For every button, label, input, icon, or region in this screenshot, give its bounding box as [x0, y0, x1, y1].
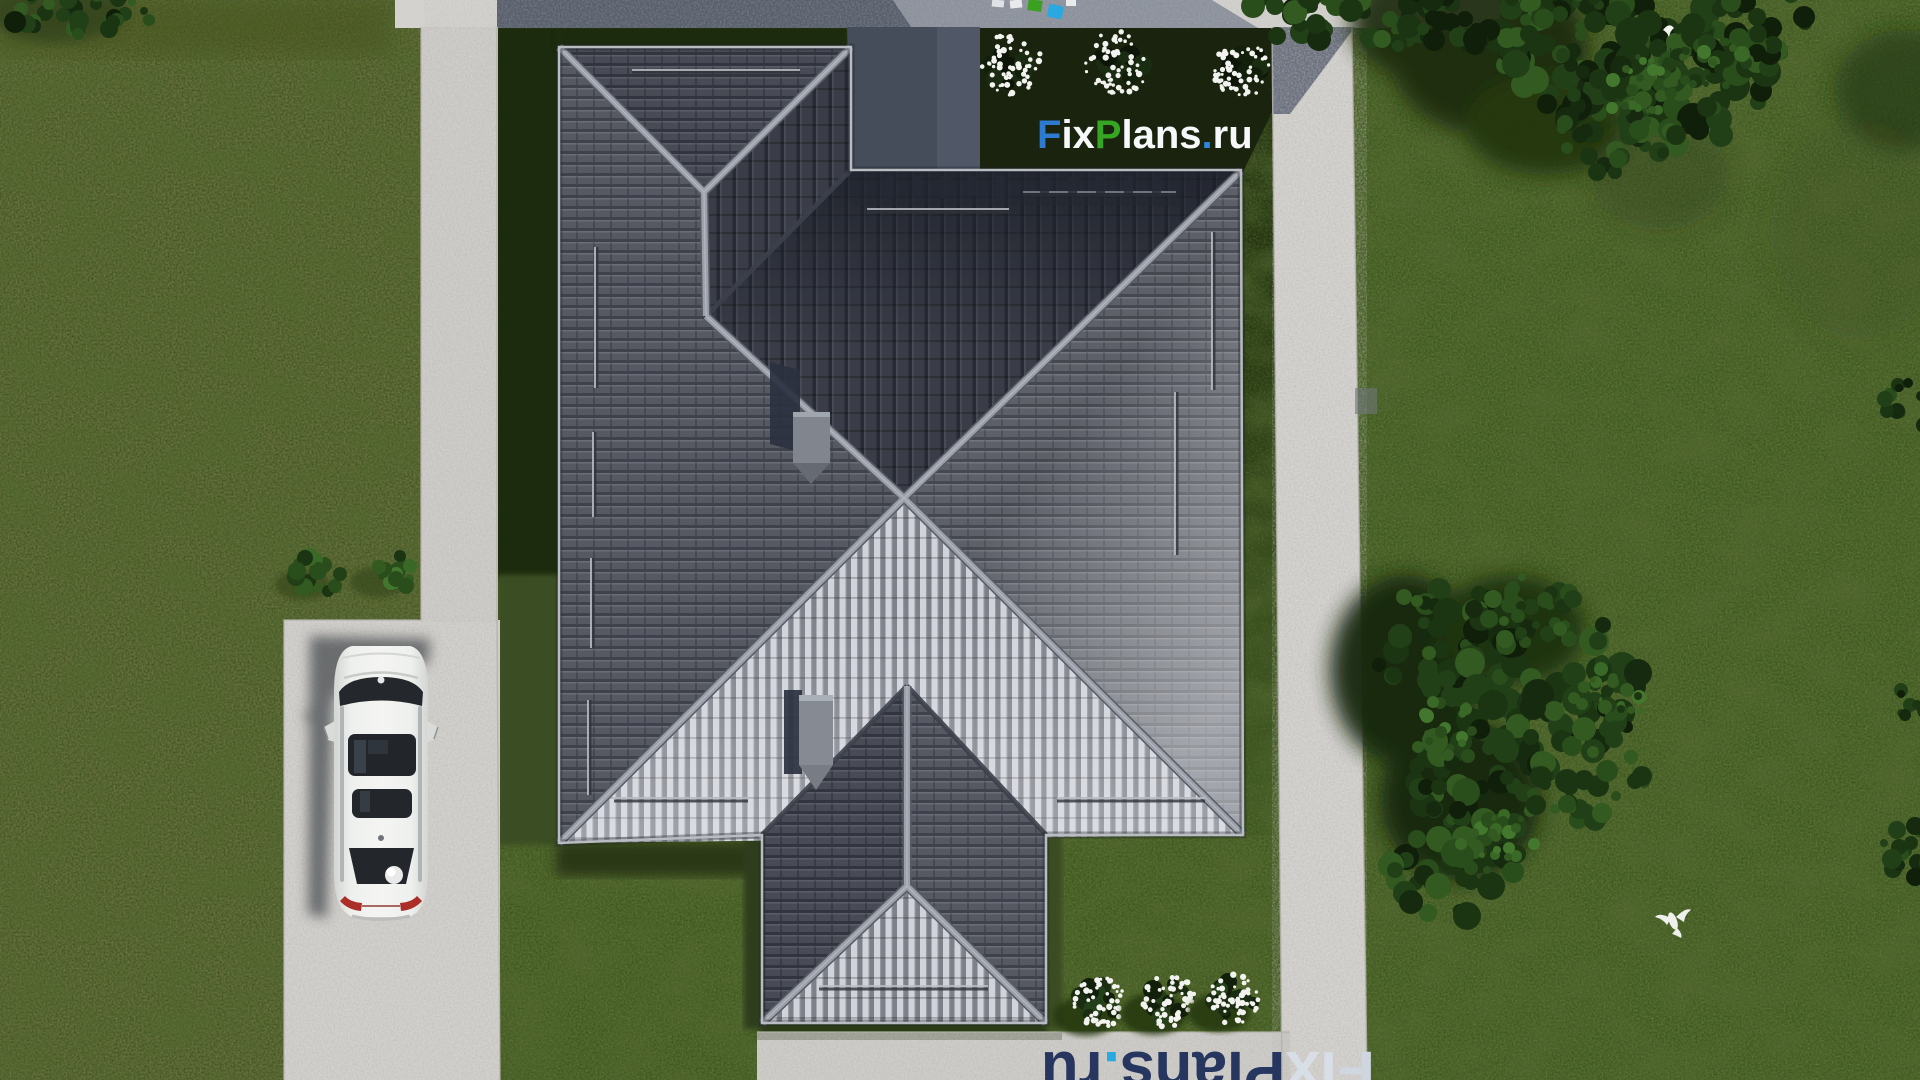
svg-text:FixPlans.ru: FixPlans.ru	[1037, 113, 1253, 157]
svg-text:FixPlans.ru: FixPlans.ru	[1041, 1038, 1375, 1080]
